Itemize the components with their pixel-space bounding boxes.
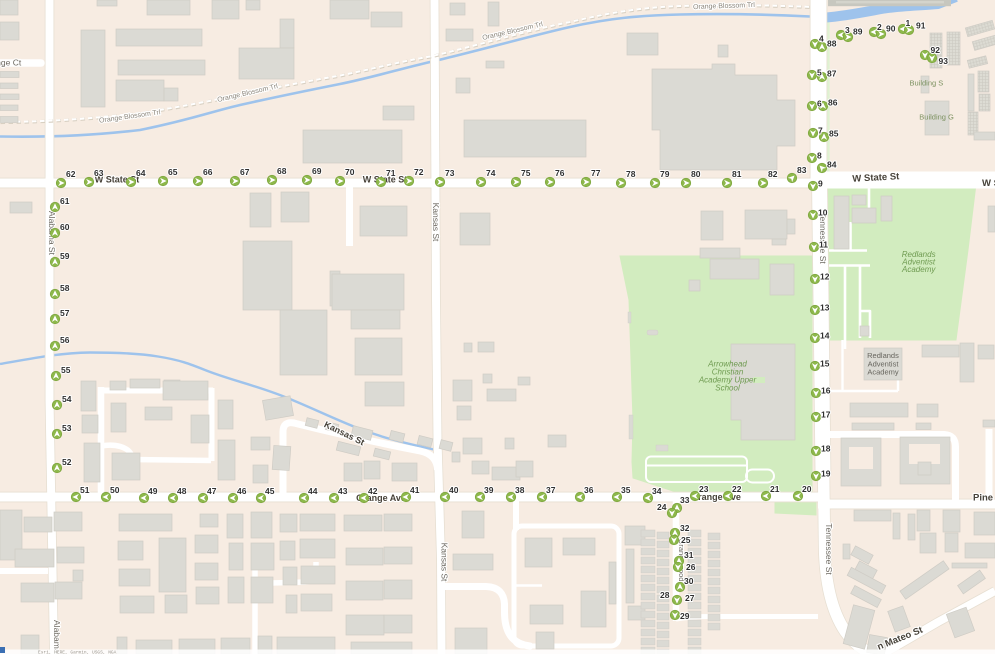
- svg-text:38: 38: [515, 485, 525, 495]
- svg-text:Academy: Academy: [901, 265, 936, 274]
- svg-text:59: 59: [60, 251, 70, 261]
- svg-text:44: 44: [308, 486, 318, 496]
- svg-text:89: 89: [853, 27, 863, 37]
- svg-text:10: 10: [818, 208, 828, 218]
- svg-text:71: 71: [386, 168, 396, 178]
- svg-text:76: 76: [555, 168, 565, 178]
- svg-text:57: 57: [60, 308, 70, 318]
- svg-text:19: 19: [821, 469, 831, 479]
- svg-text:3: 3: [845, 25, 850, 35]
- svg-text:51: 51: [80, 485, 90, 495]
- svg-text:35: 35: [621, 485, 631, 495]
- svg-text:18: 18: [821, 444, 831, 454]
- svg-text:79: 79: [660, 169, 670, 179]
- svg-text:13: 13: [820, 303, 830, 313]
- svg-text:47: 47: [207, 486, 217, 496]
- svg-text:30: 30: [684, 576, 694, 586]
- svg-text:20: 20: [802, 484, 812, 494]
- svg-text:Kansas St: Kansas St: [431, 203, 441, 242]
- svg-text:70: 70: [345, 167, 355, 177]
- svg-text:15: 15: [820, 359, 830, 369]
- svg-text:72: 72: [414, 167, 424, 177]
- svg-text:87: 87: [827, 69, 837, 79]
- svg-text:61: 61: [60, 196, 70, 206]
- svg-text:54: 54: [62, 394, 72, 404]
- svg-text:82: 82: [768, 169, 778, 179]
- svg-text:56: 56: [60, 335, 70, 345]
- svg-text:43: 43: [338, 486, 348, 496]
- svg-text:6: 6: [817, 99, 822, 109]
- svg-text:Esri, HERE, Garmin, USGS, NGA: Esri, HERE, Garmin, USGS, NGA: [38, 650, 117, 654]
- svg-text:75: 75: [521, 168, 531, 178]
- svg-text:36: 36: [584, 485, 594, 495]
- svg-text:81: 81: [732, 169, 742, 179]
- svg-text:24: 24: [657, 502, 667, 512]
- svg-text:Orange Ct: Orange Ct: [0, 58, 22, 68]
- svg-text:School: School: [715, 384, 740, 393]
- svg-text:68: 68: [277, 166, 287, 176]
- svg-text:21: 21: [770, 484, 780, 494]
- svg-text:52: 52: [62, 457, 72, 467]
- svg-text:29: 29: [680, 611, 690, 621]
- svg-text:23: 23: [699, 484, 709, 494]
- svg-text:93: 93: [939, 56, 949, 66]
- svg-text:8: 8: [817, 151, 822, 161]
- svg-text:63: 63: [94, 168, 104, 178]
- svg-text:39: 39: [484, 485, 494, 495]
- svg-text:17: 17: [821, 410, 831, 420]
- svg-text:62: 62: [66, 169, 76, 179]
- svg-text:50: 50: [110, 485, 120, 495]
- svg-text:34: 34: [652, 486, 662, 496]
- svg-text:60: 60: [60, 222, 70, 232]
- svg-text:Alabama St: Alabama St: [52, 620, 62, 654]
- svg-text:Building S: Building S: [910, 79, 944, 88]
- svg-text:74: 74: [486, 168, 496, 178]
- svg-text:14: 14: [820, 331, 830, 341]
- svg-text:2: 2: [877, 22, 882, 32]
- svg-text:Kansas St: Kansas St: [440, 543, 450, 582]
- svg-text:78: 78: [626, 169, 636, 179]
- svg-text:32: 32: [680, 523, 690, 533]
- svg-text:7: 7: [818, 126, 823, 136]
- svg-text:91: 91: [916, 21, 926, 31]
- svg-text:77: 77: [591, 168, 601, 178]
- svg-text:31: 31: [684, 550, 694, 560]
- svg-text:Pine Av: Pine Av: [973, 493, 995, 504]
- svg-text:58: 58: [60, 283, 70, 293]
- svg-text:86: 86: [828, 98, 838, 108]
- svg-text:26: 26: [686, 562, 696, 572]
- svg-text:83: 83: [797, 165, 807, 175]
- svg-text:88: 88: [827, 39, 837, 49]
- svg-text:22: 22: [732, 484, 742, 494]
- svg-text:25: 25: [681, 535, 691, 545]
- svg-text:16: 16: [821, 386, 831, 396]
- svg-text:46: 46: [237, 486, 247, 496]
- svg-text:90: 90: [886, 24, 896, 34]
- svg-text:48: 48: [177, 486, 187, 496]
- svg-text:84: 84: [827, 160, 837, 170]
- svg-text:40: 40: [449, 485, 459, 495]
- svg-text:33: 33: [680, 495, 690, 505]
- svg-text:65: 65: [168, 167, 178, 177]
- svg-text:85: 85: [829, 129, 839, 139]
- svg-text:41: 41: [410, 485, 420, 495]
- svg-text:5: 5: [817, 68, 822, 78]
- svg-text:64: 64: [136, 168, 146, 178]
- svg-text:Tennessee St: Tennessee St: [824, 523, 834, 575]
- svg-text:55: 55: [61, 365, 71, 375]
- svg-text:49: 49: [148, 486, 158, 496]
- svg-text:37: 37: [546, 485, 556, 495]
- svg-text:66: 66: [203, 167, 213, 177]
- svg-text:1: 1: [906, 18, 911, 28]
- svg-text:27: 27: [685, 593, 695, 603]
- svg-text:28: 28: [660, 590, 670, 600]
- svg-text:12: 12: [820, 272, 830, 282]
- svg-text:42: 42: [368, 486, 378, 496]
- svg-text:67: 67: [240, 167, 250, 177]
- svg-text:Tennessee St: Tennessee St: [818, 212, 828, 264]
- svg-text:53: 53: [62, 423, 72, 433]
- svg-text:73: 73: [445, 168, 455, 178]
- svg-text:Academy: Academy: [867, 368, 899, 377]
- svg-text:69: 69: [312, 166, 322, 176]
- svg-text:92: 92: [931, 45, 941, 55]
- svg-text:Building G: Building G: [919, 113, 954, 122]
- svg-text:45: 45: [265, 486, 275, 496]
- svg-text:11: 11: [819, 240, 828, 250]
- svg-text:W S: W S: [982, 178, 995, 189]
- svg-text:4: 4: [819, 34, 824, 44]
- svg-text:9: 9: [818, 179, 823, 189]
- svg-text:80: 80: [691, 169, 701, 179]
